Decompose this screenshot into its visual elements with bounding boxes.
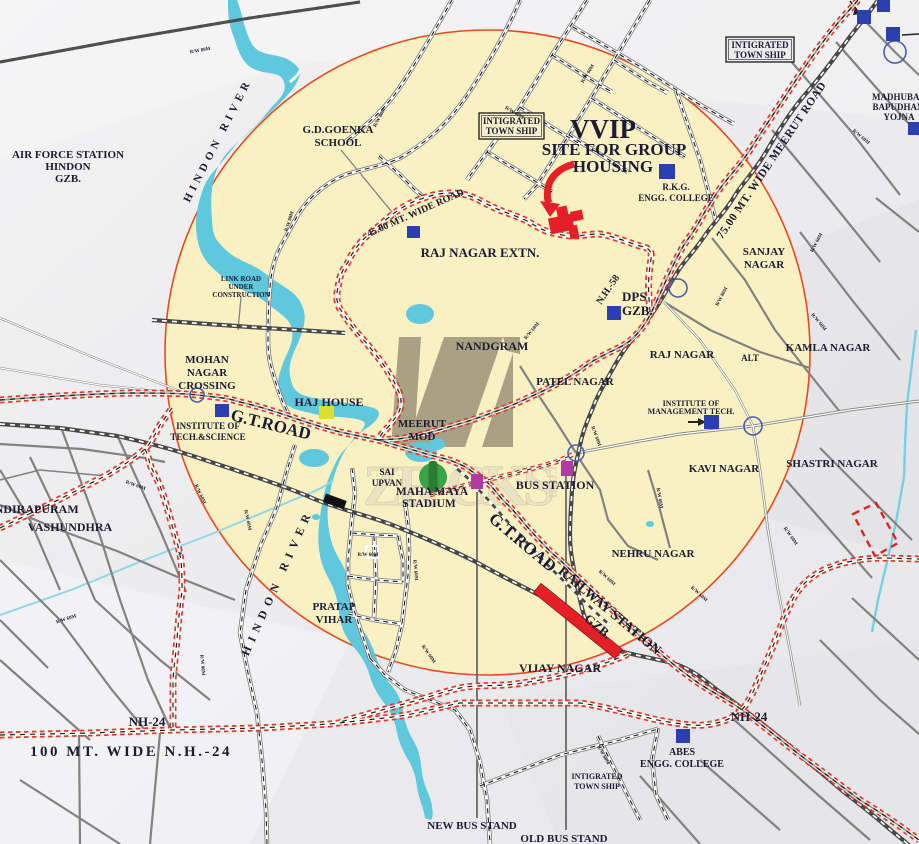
svg-text:TOWN SHIP: TOWN SHIP: [486, 126, 538, 136]
svg-text:MADHUBAN: MADHUBAN: [872, 92, 919, 102]
svg-text:KAVI NAGAR: KAVI NAGAR: [689, 463, 760, 475]
svg-text:INTIGRATED: INTIGRATED: [731, 40, 789, 50]
svg-text:DPS: DPS: [622, 289, 647, 304]
svg-text:NAGAR: NAGAR: [187, 367, 228, 379]
svg-text:MEERUT: MEERUT: [398, 418, 447, 430]
svg-text:HOUSING: HOUSING: [573, 157, 653, 176]
svg-text:OLD BUS STAND: OLD BUS STAND: [520, 833, 607, 844]
svg-text:HINDON: HINDON: [45, 161, 90, 173]
svg-text:NEHRU NAGAR: NEHRU NAGAR: [612, 548, 696, 560]
svg-text:CROSSING: CROSSING: [178, 380, 236, 392]
svg-text:R/W 60M: R/W 60M: [358, 553, 379, 558]
svg-text:MOHAN: MOHAN: [185, 354, 228, 366]
svg-text:NH-24: NH-24: [731, 709, 768, 724]
svg-text:ABES: ABES: [669, 747, 696, 758]
svg-text:CONSTRUCTION: CONSTRUCTION: [212, 291, 269, 299]
svg-text:PATEL NAGAR: PATEL NAGAR: [536, 376, 615, 388]
svg-text:ENGG. COLLEGE: ENGG. COLLEGE: [640, 759, 724, 770]
svg-text:SCHOOL: SCHOOL: [314, 137, 361, 149]
svg-text:MOD: MOD: [409, 431, 436, 443]
svg-text:UPVAN: UPVAN: [372, 478, 403, 488]
svg-text:PRATAP: PRATAP: [313, 601, 356, 613]
svg-text:ENGG. COLLEGE: ENGG. COLLEGE: [638, 193, 714, 203]
svg-text:INTIGRATED: INTIGRATED: [483, 116, 541, 126]
svg-text:TOWN SHIP: TOWN SHIP: [574, 782, 620, 791]
svg-text:NH-24: NH-24: [129, 714, 166, 729]
svg-text:VIHAR: VIHAR: [316, 614, 354, 626]
svg-text:MAHA MAYA: MAHA MAYA: [396, 486, 469, 498]
svg-text:VIJAY NAGAR: VIJAY NAGAR: [519, 661, 601, 675]
svg-text:NEW BUS STAND: NEW BUS STAND: [427, 820, 517, 832]
svg-text:MANAGEMENT TECH.: MANAGEMENT TECH.: [648, 407, 735, 416]
svg-text:BUS STATION: BUS STATION: [516, 478, 595, 492]
svg-text:R.K.G.: R.K.G.: [662, 182, 689, 192]
svg-text:ALT: ALT: [741, 353, 759, 363]
svg-text:SHASTRI NAGAR: SHASTRI NAGAR: [786, 458, 878, 470]
svg-text:STADIUM: STADIUM: [402, 498, 456, 510]
svg-text:NAGAR: NAGAR: [744, 259, 785, 271]
svg-text:NANDGRAM: NANDGRAM: [456, 339, 529, 353]
svg-text:GZB.: GZB.: [622, 303, 653, 318]
svg-text:GZB.: GZB.: [55, 173, 81, 185]
svg-text:INTIGRATED: INTIGRATED: [572, 772, 623, 781]
svg-text:KAMLA NAGAR: KAMLA NAGAR: [786, 342, 872, 354]
svg-text:TOWN SHIP: TOWN SHIP: [734, 50, 786, 60]
svg-text:BAPUDHAM: BAPUDHAM: [873, 102, 919, 112]
svg-text:YOJNA: YOJNA: [884, 112, 915, 122]
svg-text:RAJ NAGAR EXTN.: RAJ NAGAR EXTN.: [421, 245, 540, 260]
svg-text:RAJ NAGAR: RAJ NAGAR: [650, 349, 716, 361]
svg-text:INDIRAPURAM: INDIRAPURAM: [0, 502, 79, 516]
svg-text:SAI: SAI: [379, 467, 395, 477]
svg-text:TECH.&SCIENCE: TECH.&SCIENCE: [170, 432, 245, 442]
svg-text:UNDER: UNDER: [229, 283, 255, 291]
svg-text:AIR FORCE STATION: AIR FORCE STATION: [12, 149, 124, 161]
svg-text:G.D.GOENKA: G.D.GOENKA: [303, 124, 374, 136]
svg-text:LINK ROAD: LINK ROAD: [221, 275, 261, 283]
svg-text:HAJ HOUSE: HAJ HOUSE: [294, 395, 363, 409]
svg-text:100 MT. WIDE N.H.-24: 100 MT. WIDE N.H.-24: [30, 744, 232, 760]
svg-text:SANJAY: SANJAY: [743, 246, 785, 258]
svg-text:VASHUNDHRA: VASHUNDHRA: [28, 520, 113, 534]
